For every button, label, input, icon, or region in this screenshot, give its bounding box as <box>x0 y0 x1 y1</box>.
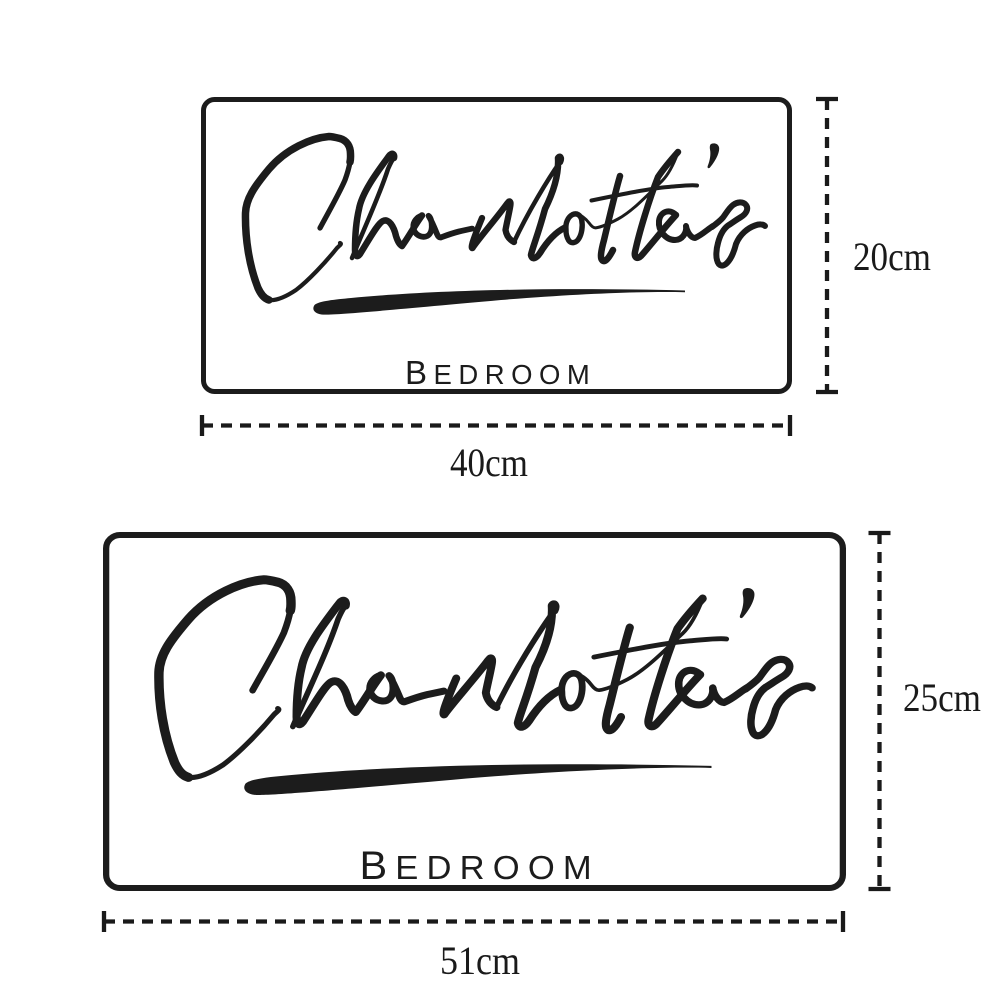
svg-text:51cm: 51cm <box>440 938 520 983</box>
svg-text:25cm: 25cm <box>903 675 981 720</box>
svg-text:20cm: 20cm <box>853 234 931 279</box>
svg-text:40cm: 40cm <box>450 440 528 485</box>
